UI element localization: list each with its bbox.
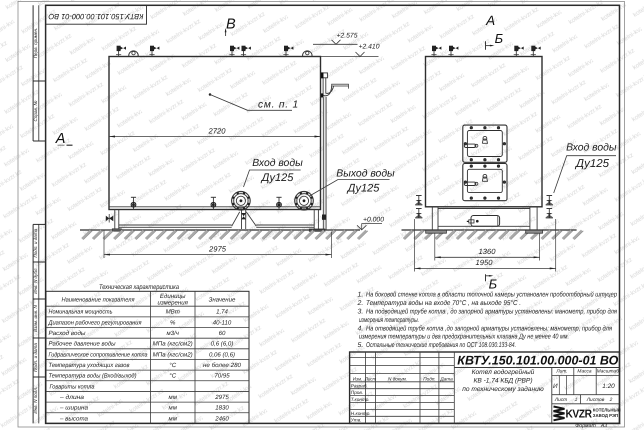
svg-text:Б: Б <box>495 31 504 46</box>
svg-text:2975: 2975 <box>208 244 227 253</box>
svg-text:А: А <box>485 13 495 28</box>
svg-text:Лист: Лист <box>554 397 567 403</box>
svg-text:Расход воды: Расход воды <box>49 330 87 337</box>
svg-text:Перв. примен.: Перв. примен. <box>33 28 38 59</box>
svg-text:Ду125: Ду125 <box>260 172 295 184</box>
svg-text:На боковой стенке котла в обла: На боковой стенке котла в области топочн… <box>366 291 617 299</box>
svg-text:Вход воды: Вход воды <box>566 143 617 154</box>
svg-text:ЗАВОД РЭП: ЗАВОД РЭП <box>593 413 618 418</box>
svg-text:– высота: – высота <box>59 415 89 422</box>
svg-text:Дата: Дата <box>439 376 453 381</box>
svg-text:А3: А3 <box>600 423 607 429</box>
svg-text:по техническому заданию: по техническому заданию <box>462 386 544 393</box>
svg-text:На отводящей трубе котла ,до з: На отводящей трубе котла ,до запорной ар… <box>366 324 612 332</box>
svg-text:Разраб.: Разраб. <box>351 383 368 388</box>
svg-text:2720: 2720 <box>208 127 227 136</box>
svg-text:Температура уходящих газов: Температура уходящих газов <box>49 362 130 369</box>
svg-text:На подводящей трубе котла , до: На подводящей трубе котла , до запорной … <box>366 308 617 316</box>
svg-text:1: 1 <box>575 397 578 403</box>
svg-text:+2.410: +2.410 <box>359 44 380 51</box>
svg-text:измерения температуры и два пр: измерения температуры и два предохраните… <box>359 334 569 341</box>
svg-text:1.: 1. <box>358 292 364 299</box>
svg-text:°С: °С <box>169 362 176 369</box>
svg-text:– ширина: – ширина <box>59 405 89 412</box>
svg-text:Подп. и дата: Подп. и дата <box>33 343 38 372</box>
svg-text:Лист: Лист <box>364 376 377 381</box>
svg-text:Значение: Значение <box>209 297 236 304</box>
svg-text:Инв. N дубл.: Инв. N дубл. <box>33 267 38 294</box>
svg-text:Масса: Масса <box>577 369 592 375</box>
svg-text:Температура воды (Вход/выход): Температура воды (Вход/выход) <box>49 373 137 380</box>
svg-text:измерения: измерения <box>157 300 188 307</box>
svg-text:см. п. 1: см. п. 1 <box>258 99 299 110</box>
svg-text:%: % <box>170 319 176 326</box>
svg-text:2460: 2460 <box>214 415 229 422</box>
svg-text:измерения температуры.: измерения температуры. <box>359 317 419 324</box>
svg-text:1950: 1950 <box>476 258 494 267</box>
svg-text:МПа (кгс/см2): МПа (кгс/см2) <box>153 341 193 348</box>
svg-text:KVZR: KVZR <box>566 409 592 421</box>
svg-text:0,06 (0,6): 0,06 (0,6) <box>209 351 235 358</box>
svg-text:КВТУ.150.101.00.000-01 ВО: КВТУ.150.101.00.000-01 ВО <box>457 353 618 367</box>
svg-text:Т.контр.: Т.контр. <box>351 397 370 402</box>
svg-text:Пров.: Пров. <box>351 390 363 395</box>
svg-text:3.: 3. <box>358 309 364 316</box>
svg-text:1360: 1360 <box>479 247 497 256</box>
svg-text:Номинальная мощность: Номинальная мощность <box>49 309 113 316</box>
svg-text:– длина: – длина <box>59 394 85 401</box>
svg-text:Н.контр.: Н.контр. <box>351 411 371 416</box>
svg-text:Изм.: Изм. <box>353 376 363 381</box>
svg-text:мм: мм <box>169 405 178 412</box>
svg-text:Листов: Листов <box>586 397 605 403</box>
svg-text:Ду125: Ду125 <box>574 158 610 170</box>
svg-text:Ду125: Ду125 <box>346 183 381 195</box>
svg-text:0,6 (6,0): 0,6 (6,0) <box>211 341 234 348</box>
svg-text:Подп. и дата: Подп. и дата <box>33 228 38 257</box>
svg-text:Вход воды: Вход воды <box>252 158 303 169</box>
svg-text:КВТУ.150.101.00.000-01 ВО: КВТУ.150.101.00.000-01 ВО <box>48 12 143 21</box>
svg-text:Остальные технические требован: Остальные технические требования по ОСТ … <box>366 341 516 349</box>
svg-text:Лит.: Лит. <box>555 369 567 375</box>
svg-text:2: 2 <box>609 397 613 403</box>
svg-text:40-110: 40-110 <box>213 319 232 326</box>
svg-text:60: 60 <box>219 330 226 337</box>
svg-text:Рабочее давление воды: Рабочее давление воды <box>49 341 117 348</box>
svg-text:Масштаб: Масштаб <box>597 369 619 375</box>
svg-text:не более 280: не более 280 <box>203 362 242 369</box>
svg-text:Выход воды: Выход воды <box>336 169 395 180</box>
svg-text:5.: 5. <box>358 342 364 349</box>
svg-text:Формат: Формат <box>575 423 596 429</box>
svg-text:+0.000: +0.000 <box>363 216 384 223</box>
svg-text:И: И <box>553 383 558 390</box>
svg-text:Инв. N подл.: Инв. N подл. <box>33 387 38 414</box>
svg-text:мм: мм <box>169 415 178 422</box>
svg-text:Диапазон рабочего регулировани: Диапазон рабочего регулирования <box>48 319 143 326</box>
svg-text:2975: 2975 <box>214 394 229 401</box>
svg-text:Подп.: Подп. <box>423 376 435 381</box>
svg-text:Говариты котла: Говариты котла <box>50 383 96 390</box>
svg-text:Котел водогрейный: Котел водогрейный <box>472 369 535 376</box>
svg-text:N докум.: N докум. <box>388 376 407 381</box>
svg-text:+2.575: +2.575 <box>337 32 358 39</box>
svg-text:Справ. №: Справ. № <box>33 101 38 122</box>
svg-text:4.: 4. <box>358 325 364 332</box>
svg-text:1,74: 1,74 <box>216 309 228 316</box>
svg-text:Утв.: Утв. <box>351 418 362 423</box>
svg-text:МВт: МВт <box>166 309 180 316</box>
svg-text:Техническая характеристика: Техническая характеристика <box>99 284 179 291</box>
svg-text:КВ -1,74 КБД (РВР): КВ -1,74 КБД (РВР) <box>473 378 532 385</box>
svg-text:Б: Б <box>489 276 498 291</box>
svg-text:Наименование показателя: Наименование показателя <box>62 297 136 304</box>
svg-text:Гидравлическое сопротивление к: Гидравлическое сопротивление котла <box>49 351 149 358</box>
svg-text:В: В <box>226 16 236 32</box>
svg-text:МПа (кгс/см2): МПа (кгс/см2) <box>153 351 193 358</box>
svg-text:мм: мм <box>169 394 178 401</box>
svg-text:°С: °С <box>169 373 176 380</box>
svg-text:м3/ч: м3/ч <box>166 330 179 337</box>
svg-text:1:20: 1:20 <box>602 383 615 390</box>
svg-text:2.: 2. <box>357 300 364 307</box>
svg-text:70/95: 70/95 <box>214 373 230 380</box>
svg-text:Температура воды на входе 70°: Температура воды на входе 70°С , на выхо… <box>366 300 521 307</box>
svg-text:КОТЕЛЬНЫЙ: КОТЕЛЬНЫЙ <box>593 407 621 412</box>
svg-text:1830: 1830 <box>215 405 229 412</box>
svg-text:Взам. инв. N: Взам. инв. N <box>33 304 38 331</box>
